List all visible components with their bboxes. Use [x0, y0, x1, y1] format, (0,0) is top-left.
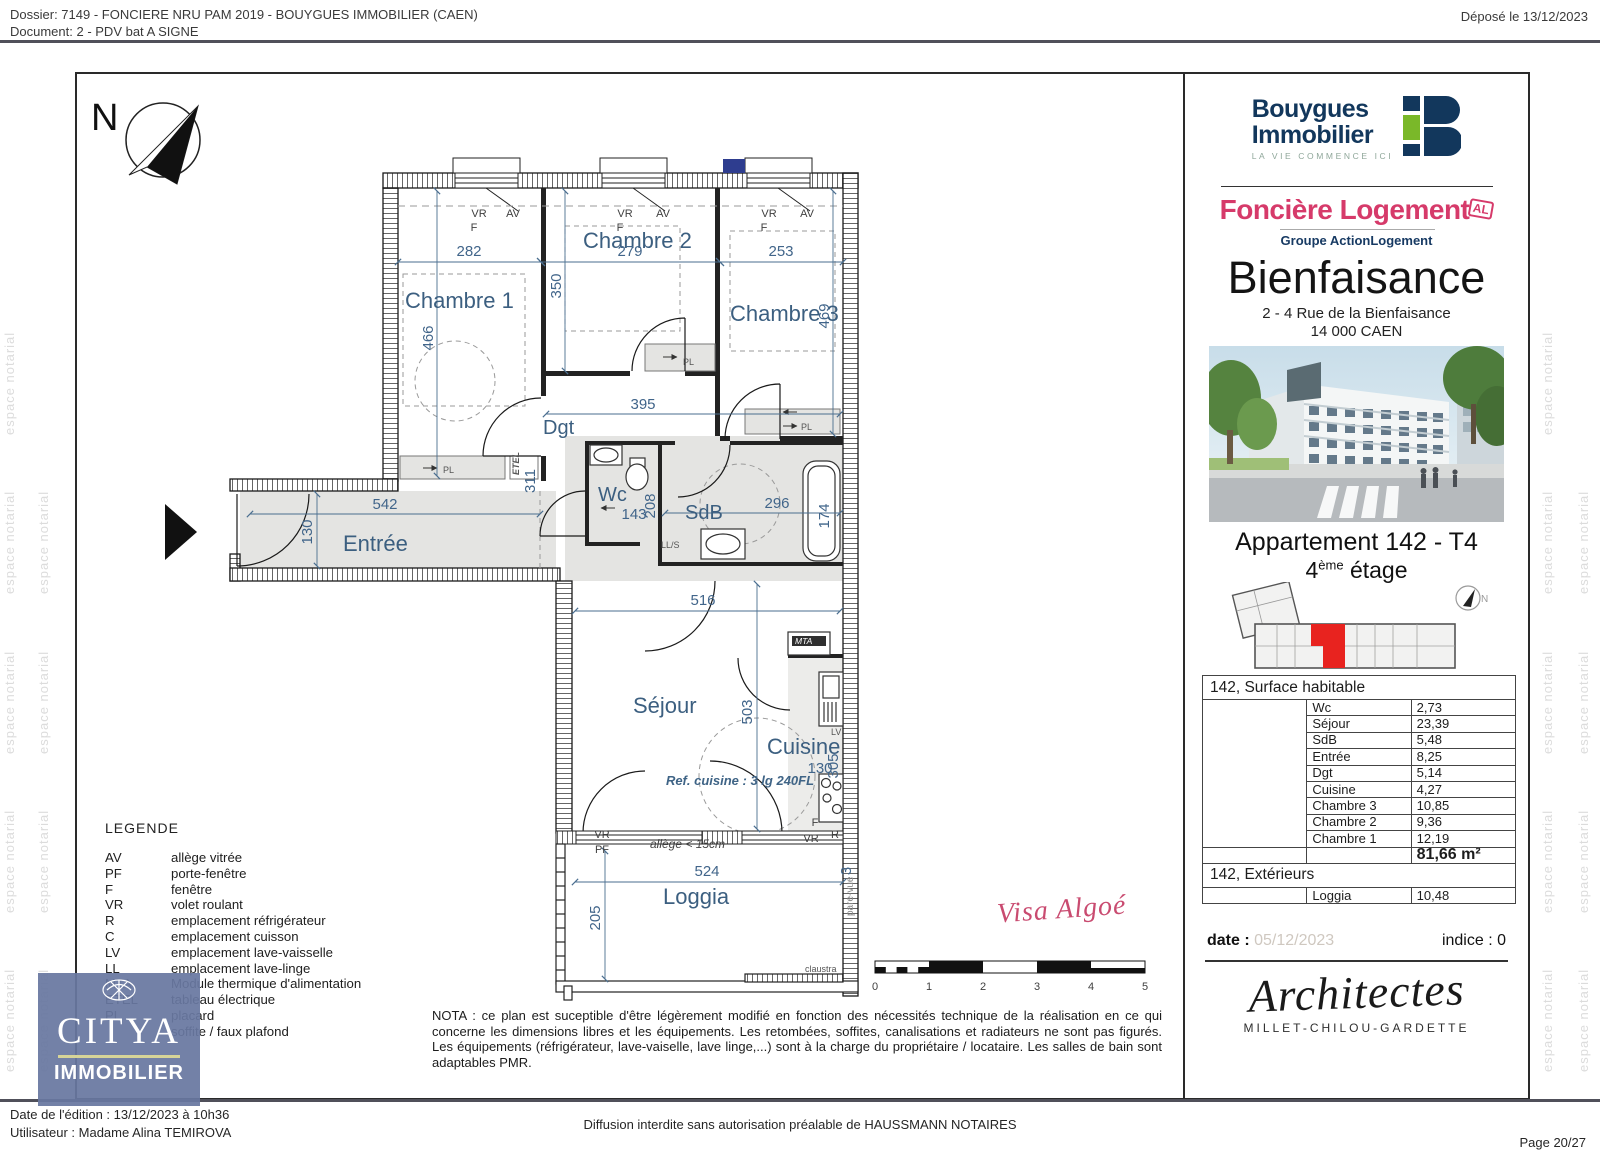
- facade-marker: [723, 159, 745, 173]
- svg-text:VR: VR: [471, 208, 486, 220]
- bouygues-b-icon: [1403, 96, 1461, 156]
- etel-tag: ETEL: [511, 452, 521, 475]
- apartment-title: Appartement 142 - T4: [1185, 528, 1528, 557]
- footer-rule: [0, 1099, 1600, 1102]
- svg-text:VR: VR: [617, 208, 632, 220]
- dim-sejour-h: 503: [739, 699, 756, 724]
- table-row: Wc2,73: [1203, 700, 1516, 716]
- dim-sdb-h: 174: [816, 503, 833, 528]
- watermark-right-2: espace notarialespace notarialespace not…: [1576, 60, 1591, 1100]
- legend-item: Remplacement réfrigérateur: [105, 913, 435, 929]
- date-value: 05/12/2023: [1254, 932, 1334, 949]
- pl-tag-2: PL: [683, 357, 694, 367]
- watermark-left-1: espace notarialespace notarialespace not…: [2, 60, 17, 1100]
- svg-text:1: 1: [926, 981, 932, 993]
- footer-page: Page 20/27: [1519, 1134, 1586, 1152]
- surface-table: 142, Surface habitable Wc2,73 Séjour23,3…: [1202, 675, 1516, 904]
- r-tag: R: [831, 829, 839, 841]
- svg-text:0: 0: [872, 981, 878, 993]
- dossier-line: Dossier: 7149 - FONCIERE NRU PAM 2019 - …: [10, 6, 478, 23]
- al-badge-icon: AL: [1468, 198, 1495, 220]
- svg-text:4: 4: [1088, 981, 1094, 993]
- svg-text:AV: AV: [506, 208, 521, 220]
- legend-item: AVallège vitrée: [105, 850, 435, 866]
- table-row: Loggia10,48: [1203, 887, 1516, 903]
- document-line: Document: 2 - PDV bat A SIGNE: [10, 23, 478, 40]
- svg-text:3: 3: [1034, 981, 1040, 993]
- fonciere-group: Groupe ActionLogement: [1185, 233, 1528, 248]
- lls-tag: LL/S: [661, 540, 680, 550]
- room-label-wc: Wc: [598, 484, 627, 506]
- scale-bar: 0 1 2 3 4 5: [872, 961, 1148, 993]
- dim-wall: 3: [838, 867, 855, 875]
- fonciere-name: Foncière Logement: [1220, 194, 1470, 225]
- dim-chambre2-h: 350: [548, 273, 565, 298]
- entree-floor: [240, 491, 556, 568]
- svg-text:5: 5: [1142, 981, 1148, 993]
- date-row: date : 05/12/2023 indice : 0: [1207, 932, 1506, 950]
- date-label: date :: [1207, 932, 1250, 949]
- dim-dgt-w: 395: [630, 396, 655, 413]
- legend-item: Cemplacement cuisson: [105, 929, 435, 945]
- citya-sub: IMMOBILIER: [38, 1062, 200, 1085]
- allege-note: allège < 15cm: [650, 837, 725, 851]
- pl-tag-1: PL: [443, 465, 454, 475]
- residence-address-1: 2 - 4 Rue de la Bienfaisance: [1185, 305, 1528, 323]
- dim-chambre1-h: 466: [420, 325, 437, 350]
- fonciere-logo: Foncière LogementAL: [1185, 194, 1528, 226]
- compass-n-label: N: [91, 97, 118, 139]
- svg-text:F: F: [617, 222, 624, 234]
- bouygues-name-2: Immobilier: [1252, 122, 1394, 148]
- svg-text:2: 2: [980, 981, 986, 993]
- table-title-row: 142, Surface habitable: [1203, 676, 1516, 700]
- claustra-tag: claustra: [805, 964, 837, 974]
- vr-tag-bottom: VR: [803, 833, 818, 845]
- citya-logo: CITYA IMMOBILIER: [38, 973, 200, 1106]
- pl-tag-3: PL: [801, 422, 812, 432]
- bouygues-tagline: LA VIE COMMENCE ICI: [1252, 151, 1394, 161]
- legend-item: PFporte-fenêtre: [105, 866, 435, 882]
- legend-item: VRvolet roulant: [105, 897, 435, 913]
- dim-wc-h: 208: [642, 493, 659, 518]
- citya-emblem-icon: [97, 977, 141, 1003]
- legend-item: Ffenêtre: [105, 882, 435, 898]
- room-label-dgt: Dgt: [543, 417, 575, 439]
- deposited-date: Déposé le 13/12/2023: [1461, 8, 1588, 25]
- header-rule: [0, 40, 1600, 43]
- table-ext-title-row: 142, Extérieurs: [1203, 863, 1516, 887]
- svg-text:VR: VR: [761, 208, 776, 220]
- divider-thin: [1280, 229, 1435, 230]
- watermark-left-2: espace notarialespace notarialespace not…: [36, 60, 51, 1100]
- pare-vue-tag: pare-vue: [845, 876, 856, 916]
- keyplan-north: N: [1481, 594, 1488, 605]
- dim-entree-w: 542: [372, 496, 397, 513]
- room-label-loggia: Loggia: [663, 884, 730, 909]
- dim-chambre1-w: 282: [456, 243, 481, 260]
- dim-loggia-h: 205: [587, 905, 604, 930]
- dim-chambre3-w: 253: [768, 243, 793, 260]
- f-tag-bottom: F: [812, 817, 819, 829]
- bouygues-name-1: Bouygues: [1252, 96, 1394, 122]
- architects-block: Architectes MILLET-CHILOU-GARDETTE: [1185, 966, 1528, 1035]
- room-label-sejour: Séjour: [633, 693, 697, 718]
- citya-divider: [58, 1055, 180, 1058]
- table-total-row: 81,66 m²: [1203, 847, 1516, 863]
- legend-title: LEGENDE: [105, 820, 435, 836]
- svg-text:AV: AV: [656, 208, 671, 220]
- room-label-entree: Entrée: [343, 531, 408, 556]
- dim-chambre2-w: 279: [617, 243, 642, 260]
- info-panel: Bouygues Immobilier LA VIE COMMENCE ICI: [1183, 74, 1528, 1098]
- room-label-sdb: SdB: [685, 502, 723, 524]
- svg-text:AV: AV: [800, 208, 815, 220]
- indice: indice : 0: [1442, 932, 1506, 950]
- entrance-arrow: [165, 504, 197, 560]
- key-plan: N: [1225, 582, 1490, 674]
- dim-sejour-w: 516: [690, 592, 715, 609]
- pf-tag-left: PF: [595, 844, 609, 856]
- citya-name: CITYA: [38, 1010, 200, 1053]
- mta-tag: MTA: [795, 636, 813, 646]
- footer-diffusion: Diffusion interdite sans autorisation pr…: [0, 1116, 1600, 1134]
- bouygues-logo: Bouygues Immobilier LA VIE COMMENCE ICI: [1185, 96, 1528, 161]
- nota-text: NOTA : ce plan est suceptible d'être lég…: [432, 1008, 1162, 1070]
- dim-chambre3-h: 469: [816, 303, 833, 328]
- architects-script: Architectes: [1184, 960, 1529, 1025]
- header-left: Dossier: 7149 - FONCIERE NRU PAM 2019 - …: [10, 6, 478, 40]
- lv-tag: LV: [831, 727, 841, 737]
- room-label-chambre1: Chambre 1: [405, 288, 514, 313]
- plan-frame: N: [75, 72, 1530, 1100]
- dim-entree-h: 130: [299, 519, 316, 544]
- vr-tag-left: VR: [594, 829, 609, 841]
- dim-loggia-w: 524: [694, 863, 719, 880]
- svg-text:F: F: [471, 222, 478, 234]
- document-page: Dossier: 7149 - FONCIERE NRU PAM 2019 - …: [0, 0, 1600, 1160]
- dim-cuisine-h: 305: [825, 753, 842, 778]
- watermark-right-1: espace notarialespace notarialespace not…: [1540, 60, 1555, 1100]
- dim-sdb-w: 296: [764, 495, 789, 512]
- facade-windows: [453, 158, 812, 211]
- north-compass: N: [91, 97, 200, 184]
- building-photo: [1209, 346, 1504, 522]
- dim-etel: 311: [522, 469, 539, 493]
- apartment-floor: 4ème étage: [1185, 557, 1528, 584]
- legend-item: LVemplacement lave-vaisselle: [105, 945, 435, 961]
- residence-address-2: 14 000 CAEN: [1185, 323, 1528, 341]
- divider: [1221, 186, 1493, 187]
- ref-cuisine-note: Ref. cuisine : 3 lg 240FL: [666, 773, 814, 788]
- residence-name: Bienfaisance: [1185, 252, 1528, 304]
- svg-text:F: F: [761, 222, 768, 234]
